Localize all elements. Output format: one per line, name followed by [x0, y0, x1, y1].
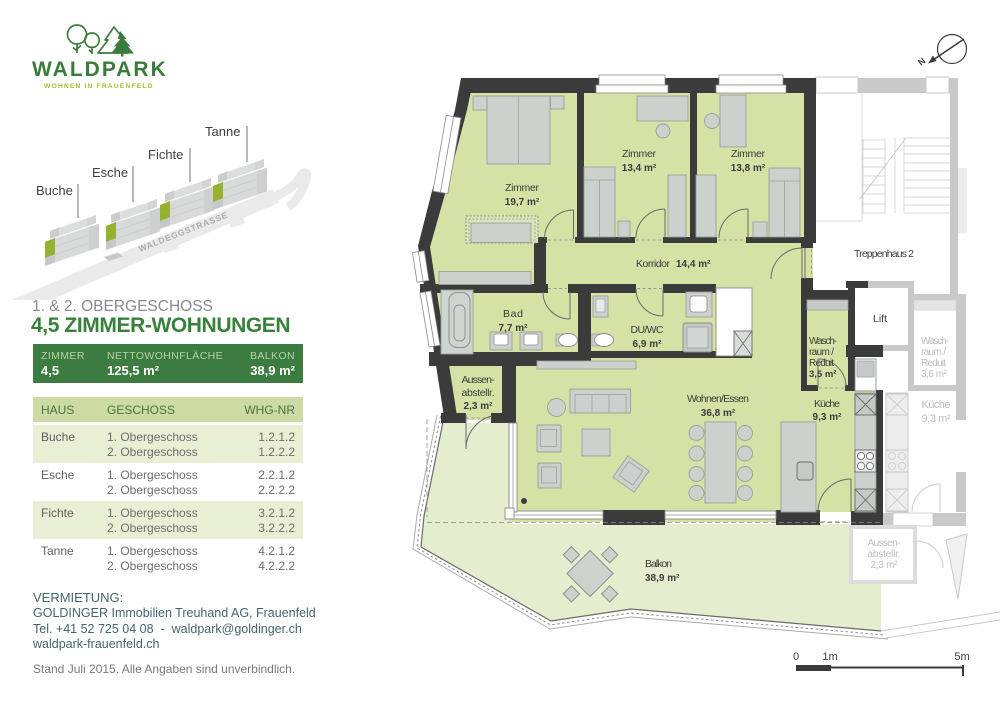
svg-text:Esche: Esche [92, 165, 128, 180]
svg-text:Balkon: Balkon [645, 558, 672, 570]
svg-text:Aussen-: Aussen- [462, 374, 496, 386]
svg-text:Zimmer: Zimmer [505, 182, 540, 194]
svg-text:2,3 m²: 2,3 m² [464, 401, 494, 412]
svg-text:Fichte: Fichte [148, 147, 183, 162]
svg-text:Wasch-: Wasch- [809, 336, 837, 347]
svg-text:abstellr.: abstellr. [868, 549, 901, 560]
svg-text:7,7 m²: 7,7 m² [499, 323, 529, 334]
svg-text:13,8 m²: 13,8 m² [731, 163, 766, 174]
svg-text:9,3 m²: 9,3 m² [813, 412, 843, 423]
svg-text:38,9 m²: 38,9 m² [645, 573, 680, 584]
svg-text:WALDPARK: WALDPARK [32, 58, 168, 81]
svg-text:Küche: Küche [814, 398, 840, 410]
svg-text:N: N [916, 56, 927, 68]
svg-text:Zimmer: Zimmer [731, 148, 766, 160]
svg-text:19,7 m²: 19,7 m² [505, 197, 540, 208]
svg-text:Bad: Bad [503, 308, 523, 320]
svg-text:9,3 m²: 9,3 m² [922, 413, 951, 425]
svg-text:Zimmer: Zimmer [622, 148, 657, 160]
svg-text:Reduit: Reduit [809, 358, 834, 369]
svg-text:3,6 m²: 3,6 m² [921, 369, 948, 380]
svg-text:1m: 1m [822, 651, 837, 663]
svg-text:Aussen-: Aussen- [868, 538, 901, 549]
svg-text:Lift: Lift [873, 313, 887, 325]
svg-text:raum /: raum / [921, 347, 946, 358]
svg-text:0: 0 [793, 651, 799, 663]
svg-text:Wasch-: Wasch- [921, 336, 949, 347]
svg-text:Küche: Küche [922, 399, 951, 411]
svg-text:5m: 5m [954, 651, 969, 663]
svg-text:Buche: Buche [36, 183, 73, 198]
svg-text:DU/WC: DU/WC [631, 324, 664, 336]
svg-text:Tanne: Tanne [205, 124, 240, 139]
svg-text:14,4 m²: 14,4 m² [676, 259, 711, 270]
svg-text:6,9 m²: 6,9 m² [633, 339, 663, 350]
svg-text:Korridor: Korridor [636, 258, 671, 270]
svg-text:Treppenhaus 2: Treppenhaus 2 [854, 248, 914, 260]
svg-text:3,5 m²: 3,5 m² [809, 369, 836, 380]
svg-text:Wohnen/Essen: Wohnen/Essen [687, 393, 749, 405]
svg-text:raum /: raum / [809, 347, 834, 358]
svg-text:36,8 m²: 36,8 m² [701, 408, 736, 419]
svg-text:2,3 m²: 2,3 m² [871, 560, 899, 571]
svg-text:abstellr.: abstellr. [462, 387, 495, 399]
svg-text:13,4 m²: 13,4 m² [622, 163, 657, 174]
svg-text:Reduit: Reduit [921, 358, 946, 369]
